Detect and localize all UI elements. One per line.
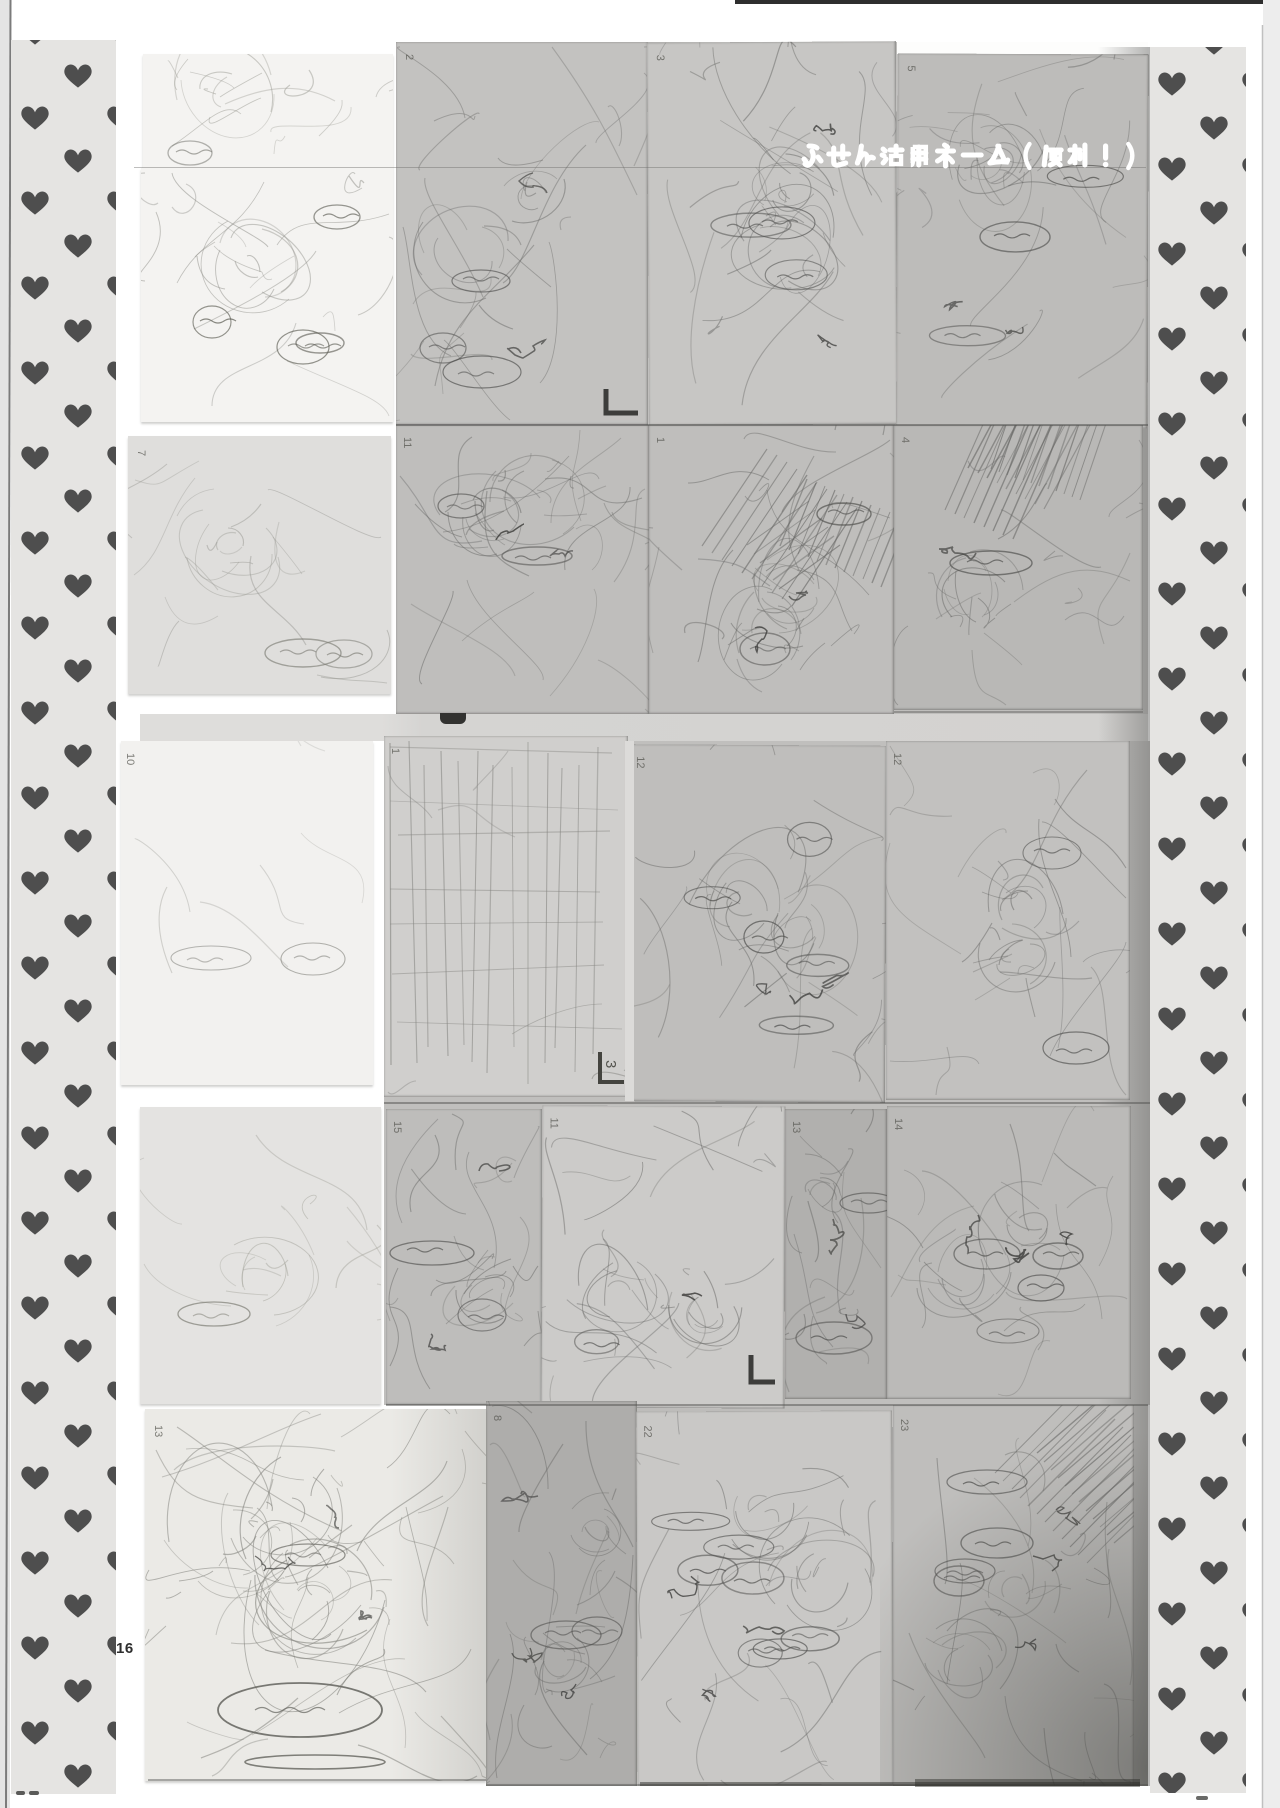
svg-text:22: 22 [641,1425,653,1437]
svg-text:12: 12 [634,756,646,768]
svg-text:12: 12 [891,753,903,765]
svg-text:11: 11 [401,437,413,448]
svg-text:4: 4 [899,437,911,443]
svg-text:14: 14 [892,1118,904,1130]
svg-text:1: 1 [389,748,401,754]
svg-text:3: 3 [602,1060,619,1068]
svg-text:3: 3 [654,55,666,61]
svg-text:13: 13 [790,1121,802,1133]
svg-text:7: 7 [135,450,147,456]
svg-text:13: 13 [152,1425,164,1437]
svg-text:2: 2 [403,54,415,60]
svg-text:16: 16 [116,1640,134,1657]
svg-text:1: 1 [654,437,666,443]
svg-text:11: 11 [548,1117,560,1128]
svg-text:10: 10 [124,753,136,765]
svg-text:15: 15 [391,1121,403,1133]
svg-text:8: 8 [491,1415,503,1421]
svg-text:5: 5 [905,65,917,71]
